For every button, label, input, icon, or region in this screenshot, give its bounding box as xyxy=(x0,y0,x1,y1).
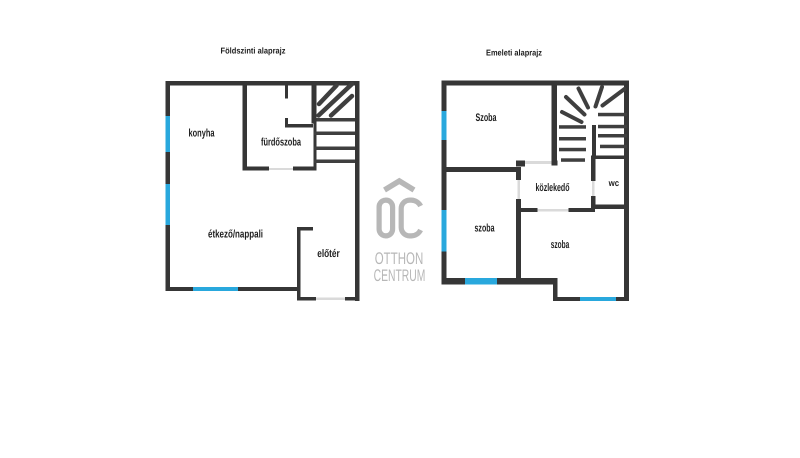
svg-text:közlekedő: közlekedő xyxy=(536,182,570,194)
svg-text:Emeleti alaprajz: Emeleti alaprajz xyxy=(486,48,542,58)
svg-text:szoba: szoba xyxy=(551,239,570,251)
svg-text:előtér: előtér xyxy=(317,248,340,260)
svg-text:konyha: konyha xyxy=(189,128,216,140)
svg-text:Szoba: Szoba xyxy=(476,112,498,124)
svg-text:Földszinti alaprajz: Földszinti alaprajz xyxy=(221,46,286,56)
svg-text:CENTRUM: CENTRUM xyxy=(374,266,426,285)
svg-text:szoba: szoba xyxy=(475,223,496,235)
svg-text:OTTHON: OTTHON xyxy=(375,249,424,268)
svg-text:étkező/nappali: étkező/nappali xyxy=(208,229,263,241)
svg-text:fürdőszoba: fürdőszoba xyxy=(261,137,302,149)
svg-text:wc: wc xyxy=(608,178,619,188)
